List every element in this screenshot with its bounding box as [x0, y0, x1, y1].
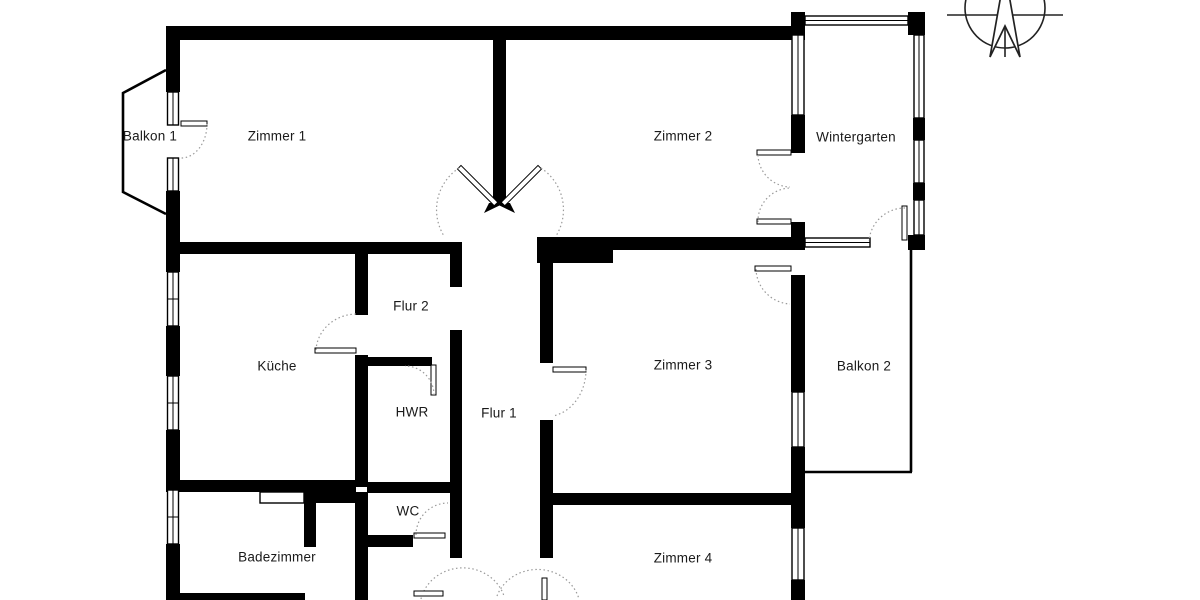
room-label-balkon-1: Balkon 1	[123, 129, 177, 144]
room-label-wc: WC	[397, 504, 420, 519]
floorplan-drawing	[0, 0, 1200, 600]
room-label-flur-1: Flur 1	[481, 406, 517, 421]
compass-north-icon	[947, 0, 1063, 57]
room-label-badezimmer: Badezimmer	[238, 550, 316, 565]
room-label-zimmer-2: Zimmer 2	[654, 129, 713, 144]
room-label-zimmer-3: Zimmer 3	[654, 358, 713, 373]
cropped-logo-bar	[180, 593, 305, 600]
room-label-zimmer-1: Zimmer 1	[248, 129, 307, 144]
room-label-wintergarten: Wintergarten	[816, 130, 896, 145]
floorplan-canvas: Balkon 1 Zimmer 1 Zimmer 2 Wintergarten …	[0, 0, 1200, 600]
room-label-hwr: HWR	[396, 405, 429, 420]
walls	[166, 12, 925, 600]
room-label-zimmer-4: Zimmer 4	[654, 551, 713, 566]
room-label-balkon-2: Balkon 2	[837, 359, 891, 374]
room-label-kueche: Küche	[257, 359, 296, 374]
room-label-flur-2: Flur 2	[393, 299, 429, 314]
